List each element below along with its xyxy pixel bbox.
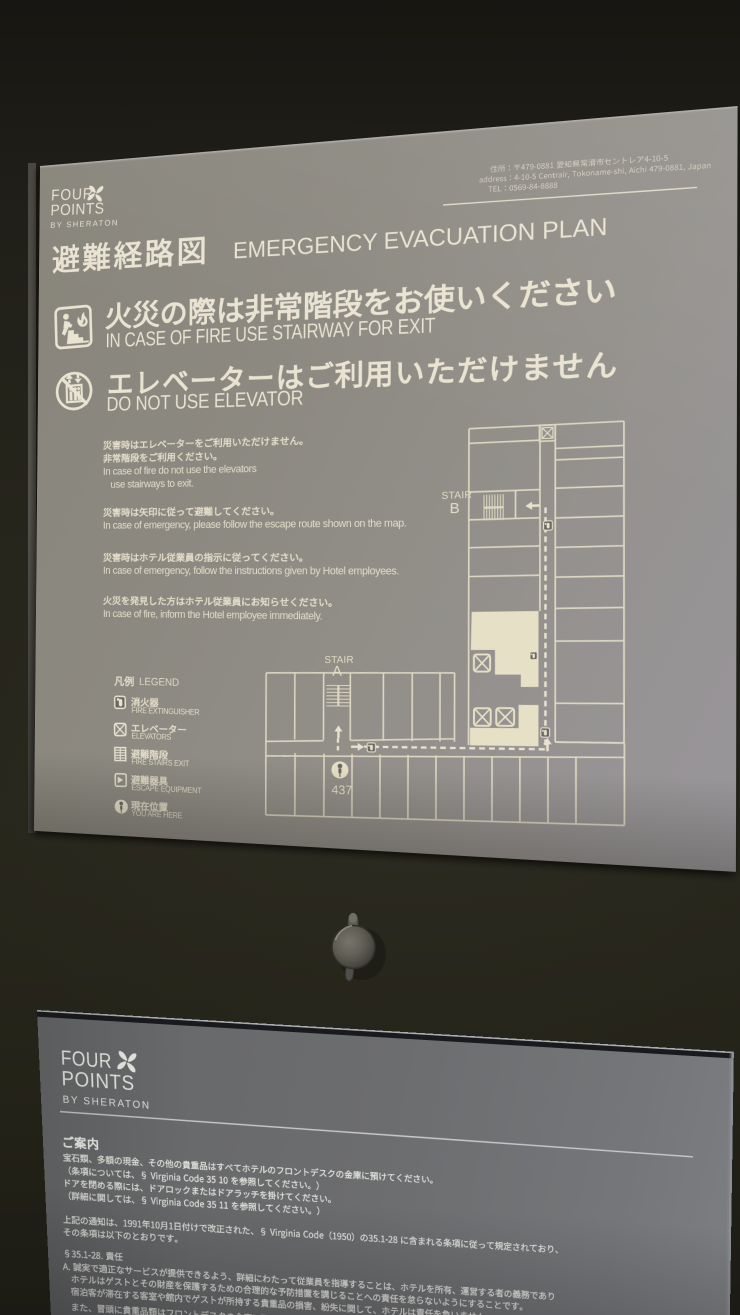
svg-text:FOUR: FOUR (60, 1047, 112, 1073)
svg-text:437: 437 (331, 784, 352, 798)
svg-text:DO NOT USE ELEVATOR: DO NOT USE ELEVATOR (106, 386, 303, 416)
svg-text:FOUR: FOUR (51, 186, 94, 205)
svg-text:ESCAPE EQUIPMENT: ESCAPE EQUIPMENT (131, 785, 202, 796)
svg-text:STAIR: STAIR (324, 654, 354, 665)
svg-text:FIRE STAIRS EXIT: FIRE STAIRS EXIT (131, 759, 190, 769)
svg-text:A: A (332, 662, 342, 679)
svg-text:use stairways to exit.: use stairways to exit. (110, 478, 193, 491)
svg-text:ELEVATORS: ELEVATORS (131, 733, 171, 742)
svg-text:POINTS: POINTS (61, 1067, 135, 1095)
svg-text:BY SHERATON: BY SHERATON (50, 218, 119, 230)
svg-text:IN CASE OF FIRE USE STAIRWAY F: IN CASE OF FIRE USE STAIRWAY FOR EXIT (105, 313, 436, 352)
svg-text:In case of fire, inform the Ho: In case of fire, inform the Hotel employ… (103, 607, 322, 621)
svg-text:In case of emergency, follow t: In case of emergency, follow the instruc… (103, 565, 399, 578)
svg-text:FIRE EXTINGUISHER: FIRE EXTINGUISHER (131, 707, 199, 717)
svg-text:B: B (450, 499, 460, 516)
svg-text:BY SHERATON: BY SHERATON (63, 1094, 151, 1112)
svg-text:STAIR: STAIR (441, 489, 472, 501)
svg-text:In case of emergency, please f: In case of emergency, please follow the … (103, 518, 407, 532)
svg-text:LEGEND: LEGEND (139, 676, 179, 689)
svg-text:YOU ARE HERE: YOU ARE HERE (131, 810, 182, 820)
svg-text:In case of fire do not use the: In case of fire do not use the elevators (103, 463, 257, 478)
svg-text:EMERGENCY EVACUATION PLAN: EMERGENCY EVACUATION PLAN (233, 214, 608, 264)
svg-text:POINTS: POINTS (50, 200, 105, 220)
